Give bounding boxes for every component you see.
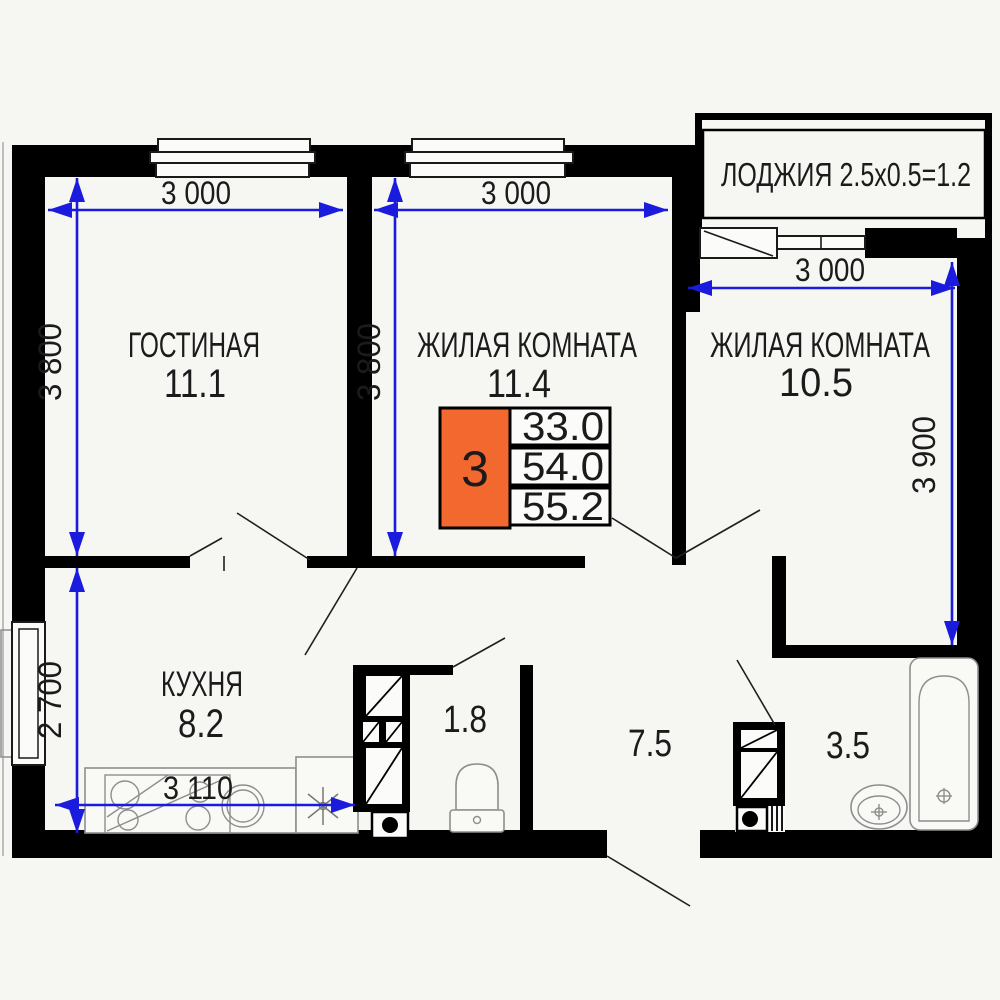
wall-wc-right (520, 665, 533, 832)
label-kitchen-area: 8.2 (178, 702, 224, 746)
badge-room-count: 3 (461, 441, 489, 497)
loggia-wall-left (695, 113, 702, 231)
info-badge: 3 33.0 54.0 55.2 (440, 405, 610, 529)
leader-badge (612, 518, 676, 558)
window-living (150, 139, 315, 177)
dim-label: 3 000 (481, 175, 551, 211)
dim-label: 3 800 (351, 323, 387, 401)
wall-bedroom2-bath-vert (772, 556, 786, 658)
dim-label: 3 900 (906, 416, 942, 494)
wall-living-kitchen-b (307, 556, 347, 568)
vent-shaft-wc (353, 665, 410, 838)
wall-bottom-left (12, 830, 607, 858)
label-living-name: ГОСТИНАЯ (128, 326, 260, 365)
dim-label: 3 000 (795, 252, 865, 288)
label-bedroom2-name: ЖИЛАЯ КОМНАТА (710, 326, 930, 365)
leader-bedroom2-door (676, 510, 760, 558)
dim-label: 3 000 (161, 175, 231, 211)
wall-living-kitchen-a (45, 556, 190, 568)
badge-total-area: 55.2 (522, 485, 604, 529)
label-hallway-area: 7.5 (628, 723, 672, 765)
wall-bedroom1-hall (372, 556, 585, 568)
bathroom-sink (851, 785, 907, 829)
bathtub (910, 658, 978, 830)
badge-apartment-area: 54.0 (522, 445, 604, 489)
wall-bedroom2-bath-horiz (772, 645, 992, 658)
wall-loggia-room (865, 228, 957, 258)
label-living-area: 11.1 (164, 362, 226, 406)
leader-wc-door (453, 638, 505, 667)
wall-wc-top (408, 665, 453, 675)
label-wc-area: 1.8 (443, 699, 487, 741)
dim-label: 3 110 (163, 770, 233, 806)
loggia-wall-top (695, 113, 992, 120)
label-bedroom1-area: 11.4 (487, 362, 551, 406)
dim-label: 2 700 (32, 661, 68, 739)
kitchen-counter-2 (296, 757, 358, 833)
label-kitchen-name: КУХНЯ (161, 665, 243, 704)
wall-bedroom1-bedroom2-lower (672, 312, 686, 565)
label-bedroom2-area: 10.5 (779, 361, 853, 405)
leader-living-door-2 (237, 513, 310, 560)
leader-kitchen-passage (305, 568, 357, 655)
wall-top (12, 145, 700, 177)
leader-entrance-door (607, 856, 690, 906)
dimension-bedroom1-width: 3 000 (374, 175, 668, 218)
toilet (450, 764, 504, 832)
badge-living-area: 33.0 (522, 405, 604, 449)
dimension-bedroom2-height: 3 900 (906, 262, 960, 645)
dimension-living-width: 3 000 (48, 175, 343, 218)
window-bedroom1 (405, 139, 573, 177)
floor-plan: ЛОДЖИЯ 2.5x0.5=1.2 (0, 0, 1000, 1000)
leader-living-door (190, 538, 222, 556)
loggia-label: ЛОДЖИЯ 2.5x0.5=1.2 (721, 156, 971, 193)
dim-label: 3 800 (32, 323, 68, 401)
leader-bathroom-door (737, 660, 775, 725)
vent-shaft-bathroom (733, 722, 785, 832)
wall-bottom-right (700, 830, 992, 858)
label-bedroom1-name: ЖИЛАЯ КОМНАТА (417, 326, 637, 365)
label-bathroom-area: 3.5 (826, 725, 870, 767)
